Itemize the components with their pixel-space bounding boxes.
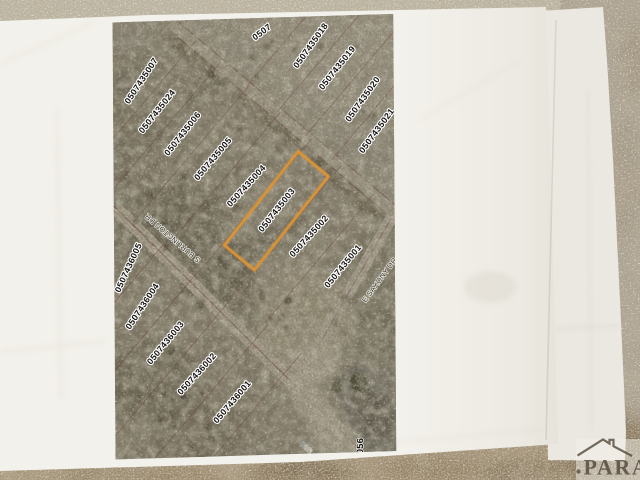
svg-text:PARA: PARA <box>584 455 640 480</box>
svg-text:056: 056 <box>354 438 365 455</box>
